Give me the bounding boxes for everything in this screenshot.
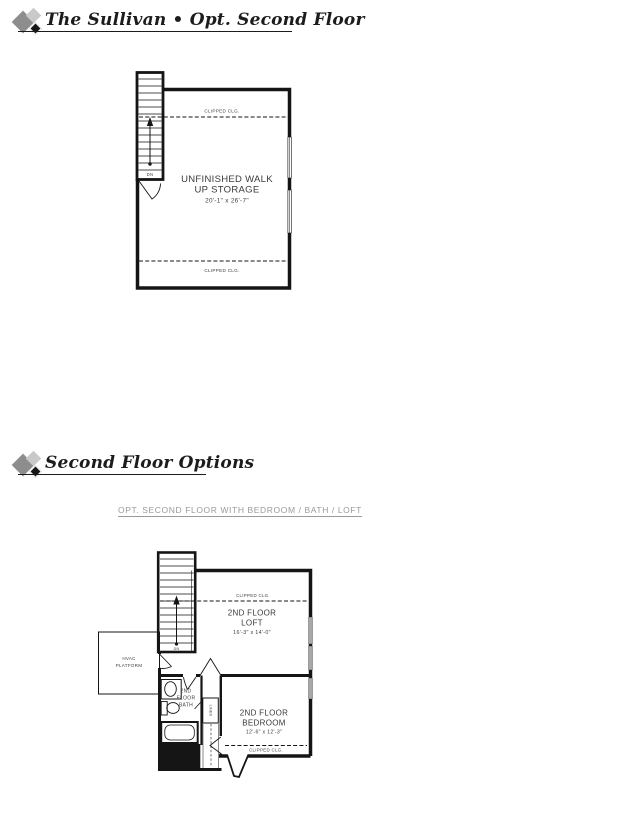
dormer-bay xyxy=(227,755,249,778)
loft-label-line1: 2ND FLOOR xyxy=(228,609,277,618)
plan2-staircase xyxy=(158,553,195,653)
section1-title: The Sullivan • Opt. Second Floor xyxy=(45,10,365,30)
bath-label-line1: 2ND xyxy=(181,689,192,695)
loft-dimensions: 16'-3" x 14'-0" xyxy=(233,630,271,636)
bedroom-label-line1: 2ND FLOOR xyxy=(240,709,289,718)
plan-sheet: The Sullivan • Opt. Second Floor xyxy=(0,0,640,838)
toilet-icon xyxy=(161,702,179,716)
corridor-lines xyxy=(203,724,219,768)
bath-fixtures xyxy=(161,680,198,744)
plan2-caption: OPT. SECOND FLOOR WITH BEDROOM / BATH / … xyxy=(90,505,390,515)
linen-label: LINEN xyxy=(208,705,212,717)
plan2-right-wall-windows xyxy=(309,617,313,699)
plan2-drawing: DN CLIPPED CLG. 2ND FLOOR LOFT 16'-3" x … xyxy=(90,540,330,802)
bathtub-icon xyxy=(161,722,198,743)
loft-label-line2: LOFT xyxy=(241,619,263,628)
storage-room-label-line2: UP STORAGE xyxy=(195,185,260,196)
loft-clipped-ceiling-label: CLIPPED CLG. xyxy=(236,593,270,598)
hvac-label-line2: PLATFORM xyxy=(116,663,143,668)
storage-room-label-line1: UNFINISHED WALK xyxy=(181,174,273,185)
plan1-drawing: DN CLIPPED CLG. CLIPPED CLG. UNFINISHED … xyxy=(120,60,320,300)
stair-door-swing xyxy=(139,181,161,199)
bedroom-label-line2: BEDROOM xyxy=(242,719,285,728)
section1-underline xyxy=(18,31,292,32)
attic-space-fill xyxy=(161,744,201,769)
stair-dn-label: DN xyxy=(147,172,154,177)
bedroom-clipped-ceiling-label: CLIPPED CLG. xyxy=(249,748,283,753)
bath-label-line2: FLOOR xyxy=(177,696,196,702)
plan2-caption-text: OPT. SECOND FLOOR WITH BEDROOM / BATH / … xyxy=(118,505,362,517)
hvac-label-line1: HVAC xyxy=(122,656,136,661)
section2-underline xyxy=(18,474,206,475)
storage-room-dimensions: 20'-1" x 26'-7" xyxy=(205,198,249,205)
clipped-ceiling-label-bottom: CLIPPED CLG. xyxy=(204,268,239,273)
clipped-ceiling-label-top: CLIPPED CLG. xyxy=(204,109,239,114)
stair-dn-label: DN xyxy=(174,647,180,651)
plan1-staircase xyxy=(137,73,163,200)
bath-label-line3: BATH xyxy=(179,703,193,709)
bedroom-dimensions: 12'-6" x 12'-3" xyxy=(246,730,282,736)
section2-title: Second Floor Options xyxy=(45,453,254,473)
